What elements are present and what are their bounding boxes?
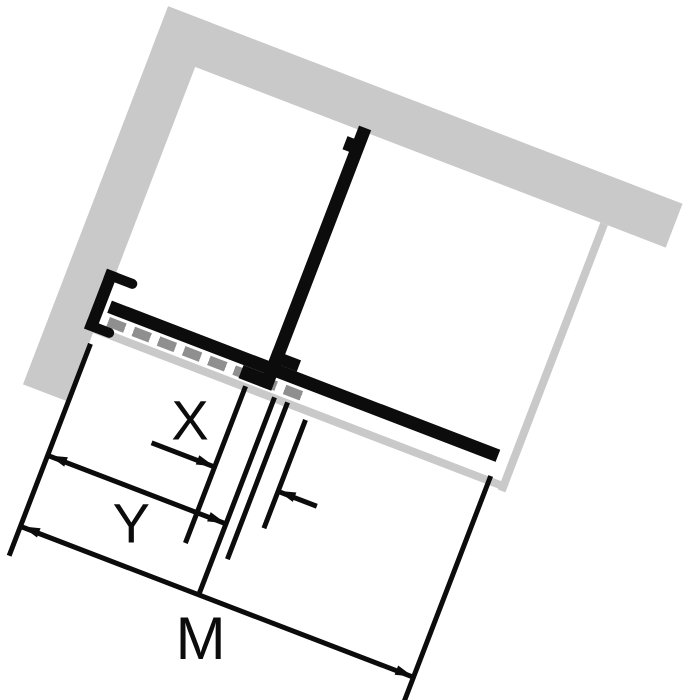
dimension-label-m: M bbox=[176, 609, 226, 669]
y-dim-arrow-right bbox=[207, 512, 227, 528]
x-dim-arrow-right bbox=[196, 455, 216, 471]
shower-enclosure-plan-diagram: X Y M bbox=[0, 0, 700, 700]
x-dim-arrow-left bbox=[276, 486, 296, 502]
door-top-rail bbox=[107, 301, 500, 462]
y-dim-arrow-left bbox=[47, 451, 67, 467]
extension-line-door-edge bbox=[262, 419, 308, 529]
side-panel-outline-vertical bbox=[498, 222, 608, 492]
dimension-label-x: X bbox=[171, 393, 208, 449]
side-panel-outline-horizontal bbox=[93, 326, 509, 492]
diagram-rotated-group: X Y M bbox=[0, 0, 700, 700]
m-dim-arrow-left bbox=[20, 522, 40, 538]
extension-line-door-end bbox=[402, 475, 493, 700]
wall-top bbox=[151, 6, 682, 247]
m-dim-arrow-right bbox=[395, 665, 415, 681]
dimension-label-y: Y bbox=[113, 495, 150, 551]
